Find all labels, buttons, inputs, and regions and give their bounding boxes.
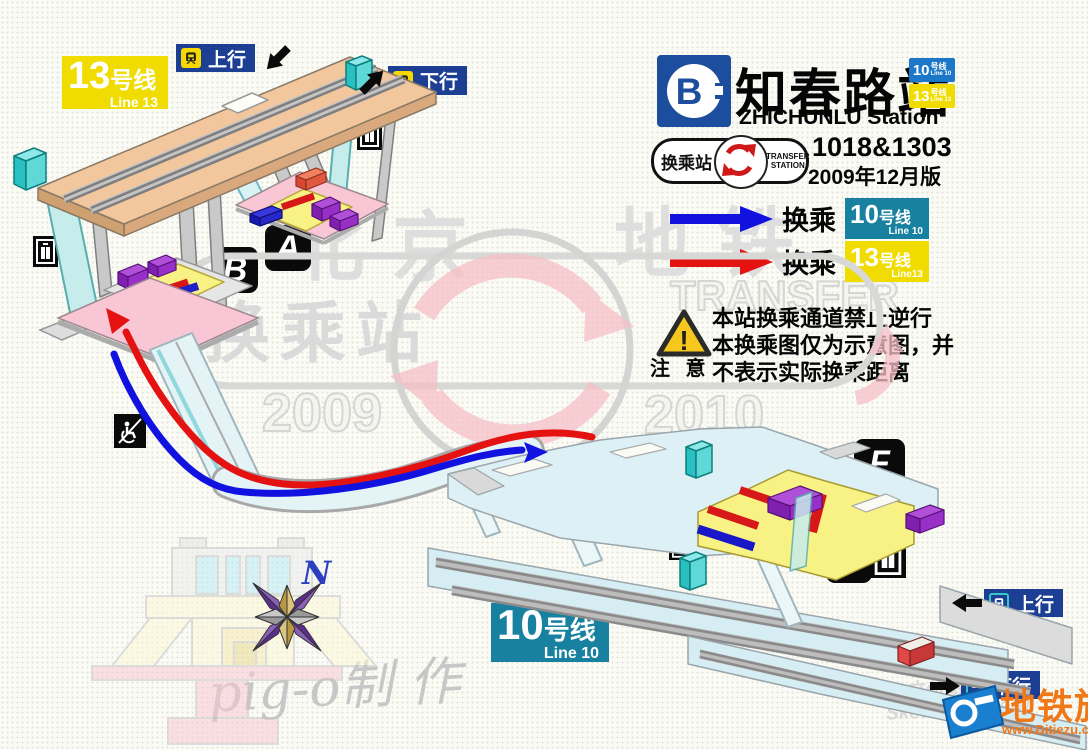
arrow-to-up-line13 [260, 42, 294, 76]
ditiezu-logo [933, 680, 1005, 747]
compass-north-label: N [301, 554, 333, 592]
station-building-watermark [92, 538, 376, 744]
ditiezu-site-url[interactable]: www.Ditiezu.com [1002, 722, 1088, 737]
ditiezu-logo-icon [933, 680, 1005, 742]
transfer-map-canvas: 北京 地铁 换乘站 TRANSFER 2009 2010 pig-o制 作 立体… [0, 0, 1088, 750]
station-3d-diagram: N [0, 0, 1088, 750]
compass-star-icon [253, 583, 321, 651]
